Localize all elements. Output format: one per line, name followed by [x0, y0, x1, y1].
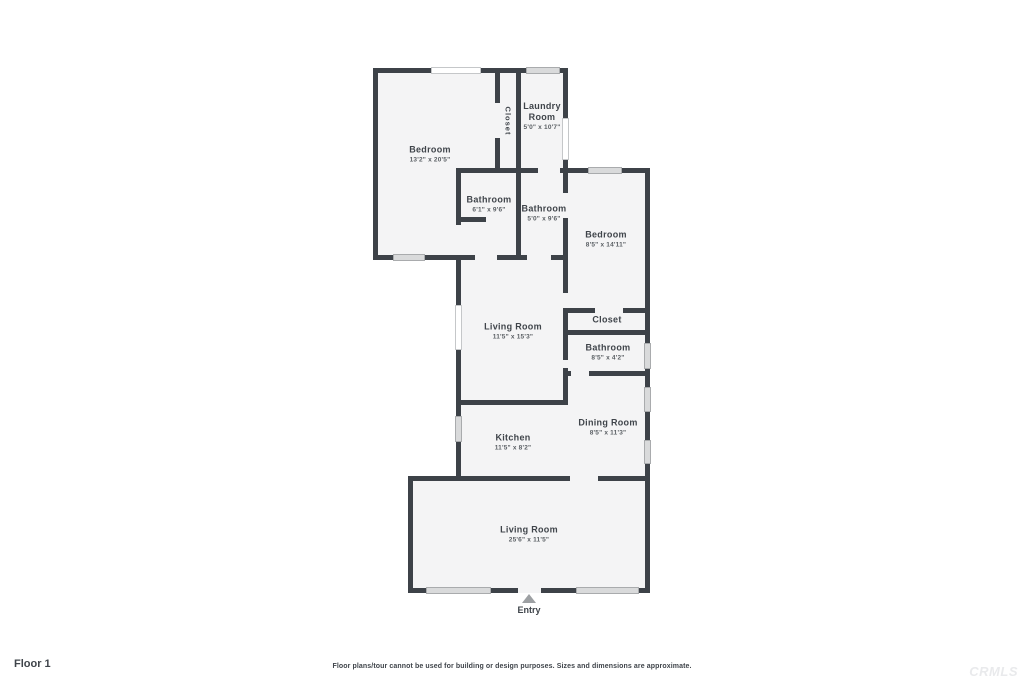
floorplan-canvas: Bedroom 13'2" x 20'5" Closet Laundry Roo… — [0, 0, 1024, 683]
wall-segment — [408, 588, 428, 593]
wall-segment — [456, 350, 461, 402]
room-label-dining: Dining Room 8'5" x 11'3" — [578, 418, 637, 437]
window-marker — [393, 254, 425, 261]
room-area-bathroom-1 — [456, 168, 521, 260]
room-name: Bedroom — [585, 230, 627, 241]
room-dims: 5'0" x 9'6" — [522, 215, 567, 222]
room-name: Laundry Room — [515, 101, 569, 123]
room-label-bedroom-1: Bedroom 13'2" x 20'5" — [409, 145, 451, 164]
wall-segment — [645, 412, 650, 440]
wall-segment — [563, 330, 650, 335]
wall-segment — [639, 588, 650, 593]
room-label-living-2: Living Room 25'6" x 11'5" — [500, 525, 558, 544]
window-marker — [455, 416, 462, 442]
window-marker — [644, 343, 651, 369]
room-label-bathroom-2: Bathroom 5'0" x 9'6" — [522, 204, 567, 223]
room-dims: 11'5" x 15'3" — [484, 333, 542, 340]
wall-segment — [623, 308, 650, 313]
wall-segment — [456, 442, 461, 478]
wall-segment — [373, 255, 393, 260]
wall-segment — [563, 218, 568, 293]
window-marker — [455, 305, 462, 350]
wall-segment — [563, 308, 595, 313]
wall-segment — [645, 464, 650, 592]
wall-segment — [519, 255, 527, 260]
wall-segment — [516, 68, 521, 258]
wall-segment — [563, 371, 571, 376]
window-marker — [576, 587, 639, 594]
window-marker — [526, 67, 560, 74]
wall-segment — [456, 258, 461, 305]
wall-segment — [495, 68, 500, 103]
room-name: Dining Room — [578, 418, 637, 429]
wall-segment — [463, 255, 475, 260]
wall-segment — [456, 168, 538, 173]
room-dims: 5'0" x 10'7" — [515, 124, 569, 131]
wall-segment — [541, 588, 578, 593]
wall-segment — [495, 138, 500, 172]
wall-segment — [408, 476, 570, 481]
room-label-closet-1: Closet — [504, 107, 513, 136]
floor-label: Floor 1 — [14, 658, 51, 670]
wall-segment — [373, 68, 431, 73]
room-name: Bedroom — [409, 145, 451, 156]
room-label-bathroom-3: Bathroom 8'5" x 4'2" — [586, 343, 631, 362]
room-label-laundry: Laundry Room 5'0" x 10'7" — [515, 101, 569, 131]
watermark-logo: CRMLS — [969, 664, 1018, 679]
wall-segment — [458, 400, 568, 405]
room-label-bedroom-2: Bedroom 8'5" x 14'11" — [585, 230, 627, 249]
room-name: Kitchen — [495, 433, 532, 444]
window-marker — [426, 587, 491, 594]
wall-segment — [497, 255, 519, 260]
room-dims: 11'5" x 8'2" — [495, 444, 532, 451]
room-label-kitchen: Kitchen 11'5" x 8'2" — [495, 433, 532, 452]
entry-arrow-icon — [522, 594, 536, 603]
window-marker — [431, 67, 481, 74]
wall-segment — [456, 402, 461, 416]
window-marker — [644, 440, 651, 464]
room-name: Closet — [592, 315, 621, 326]
wall-segment — [491, 588, 518, 593]
room-label-closet-2: Closet — [592, 315, 621, 326]
wall-segment — [589, 371, 650, 376]
room-dims: 8'5" x 11'3" — [578, 429, 637, 436]
room-name: Living Room — [500, 525, 558, 536]
room-name: Bathroom — [467, 195, 512, 206]
wall-segment — [408, 476, 413, 593]
room-name: Bathroom — [586, 343, 631, 354]
room-dims: 6'1" x 9'6" — [467, 206, 512, 213]
wall-segment — [458, 217, 486, 222]
window-marker — [644, 387, 651, 412]
room-name: Closet — [504, 107, 513, 136]
room-dims: 25'6" x 11'5" — [500, 536, 558, 543]
window-marker — [588, 167, 622, 174]
room-dims: 8'5" x 4'2" — [586, 354, 631, 361]
wall-segment — [645, 168, 650, 343]
room-name: Living Room — [484, 322, 542, 333]
room-name: Bathroom — [522, 204, 567, 215]
wall-segment — [373, 68, 378, 260]
disclaimer-text: Floor plans/tour cannot be used for buil… — [332, 663, 691, 670]
room-label-living-1: Living Room 11'5" x 15'3" — [484, 322, 542, 341]
room-dims: 13'2" x 20'5" — [409, 156, 451, 163]
entry-label: Entry — [517, 605, 540, 615]
room-label-bathroom-1: Bathroom 6'1" x 9'6" — [467, 195, 512, 214]
wall-segment — [563, 168, 568, 193]
room-dims: 8'5" x 14'11" — [585, 241, 627, 248]
wall-segment — [598, 476, 650, 481]
